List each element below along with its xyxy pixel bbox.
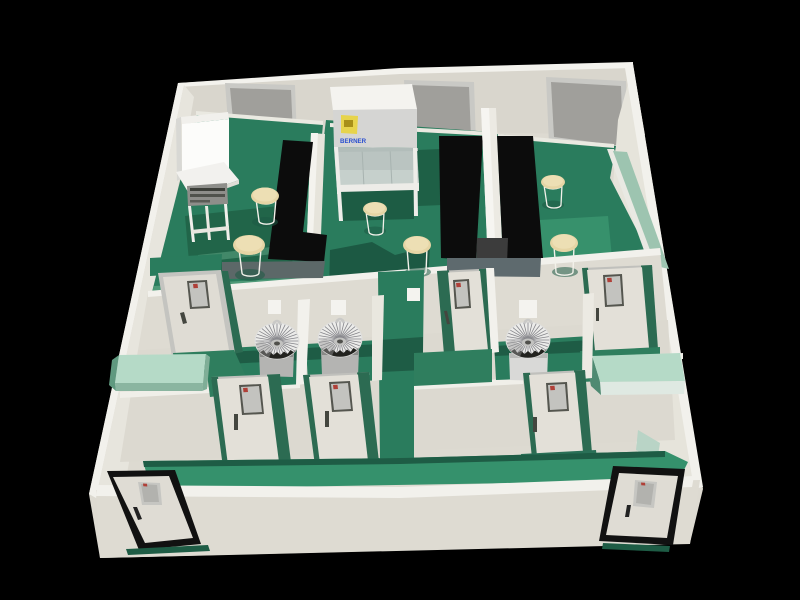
svg-text:BERNER: BERNER bbox=[340, 138, 367, 145]
